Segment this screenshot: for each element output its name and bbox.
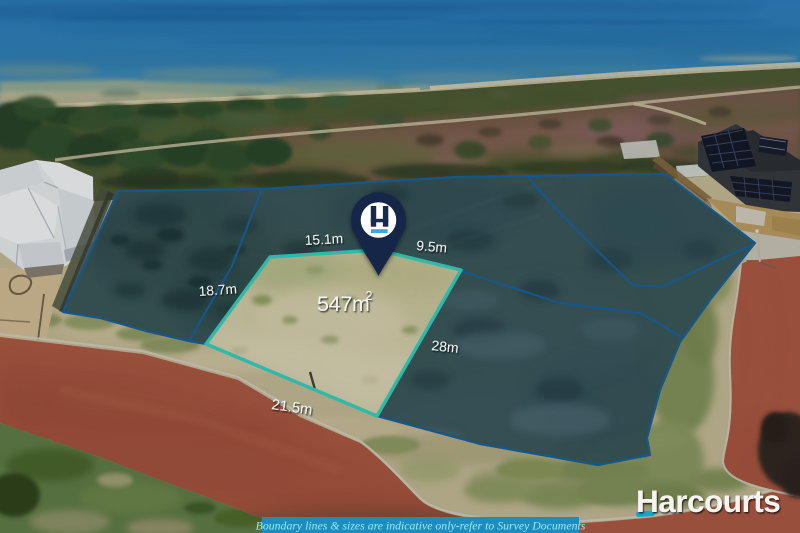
- svg-text:15.1m: 15.1m: [304, 231, 343, 248]
- svg-text:9.5m: 9.5m: [416, 238, 448, 256]
- svg-text:547m: 547m: [317, 292, 370, 316]
- svg-text:Boundary lines & sizes are ind: Boundary lines & sizes are indicative on…: [256, 519, 586, 533]
- svg-text:28m: 28m: [431, 337, 460, 356]
- svg-text:18.7m: 18.7m: [198, 281, 237, 299]
- svg-text:2: 2: [366, 289, 373, 303]
- svg-text:Harcourts: Harcourts: [636, 483, 780, 519]
